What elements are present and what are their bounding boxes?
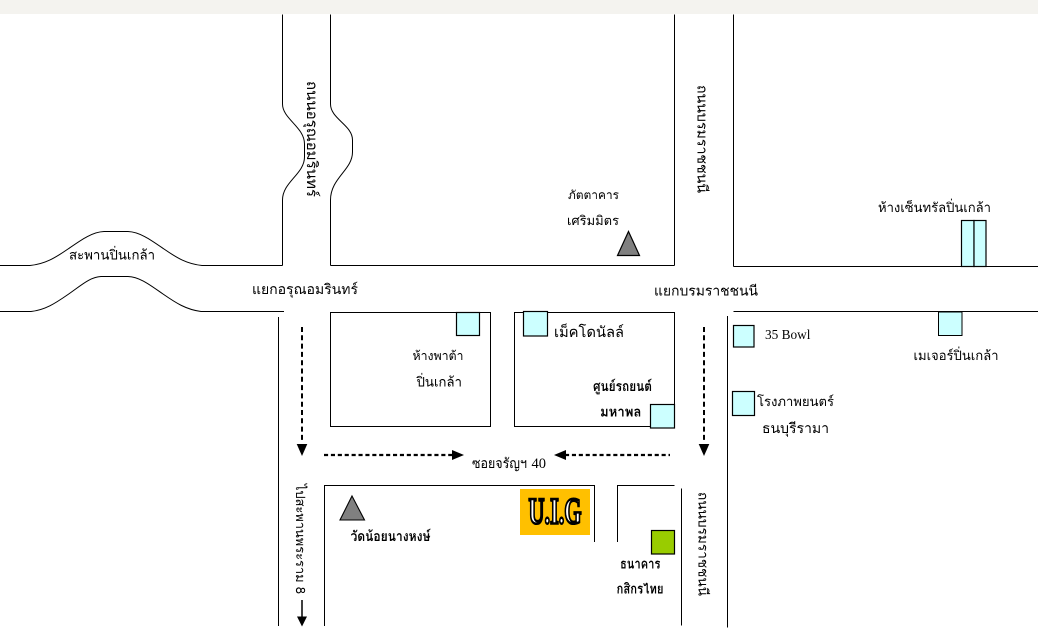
svg-text:35 Bowl: 35 Bowl bbox=[765, 327, 811, 342]
svg-text:40: 40 bbox=[532, 456, 547, 472]
svg-text:U.I.G: U.I.G bbox=[529, 492, 582, 533]
